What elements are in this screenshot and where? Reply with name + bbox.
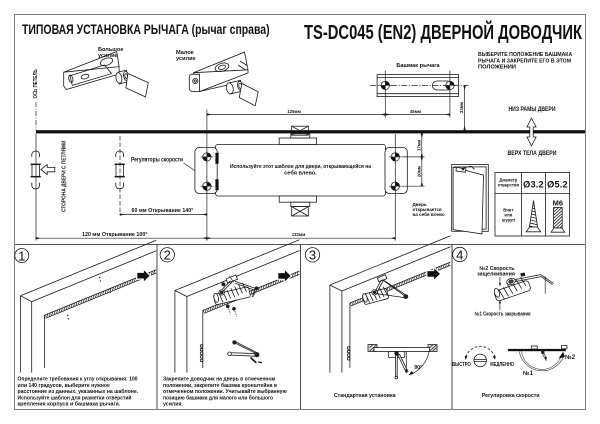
svg-text:№1 Скорость закрывания: №1 Скорость закрывания (475, 312, 531, 318)
svg-text:20мм: 20мм (416, 166, 421, 177)
svg-text:TS-DC045 (EN2) ДВЕРНОЙ ДОВОДЧИ: TS-DC045 (EN2) ДВЕРНОЙ ДОВОДЧИК (304, 20, 582, 44)
svg-text:усилие: усилие (98, 53, 118, 59)
svg-text:ВЕРХ ТЕЛА ДВЕРИ: ВЕРХ ТЕЛА ДВЕРИ (508, 151, 557, 157)
svg-text:отмеченном положении. Учитывай: отмеченном положении. Учитывайте выбранн… (163, 388, 287, 395)
svg-text:125мм: 125мм (287, 109, 301, 114)
svg-text:Стандартная установка: Стандартная установка (334, 393, 396, 399)
svg-text:ОСЬ ПЕТЕЛЬ: ОСЬ ПЕТЕЛЬ (33, 69, 39, 98)
svg-text:2: 2 (164, 248, 171, 263)
svg-text:60 мм Открывание 140°: 60 мм Открывание 140° (132, 208, 194, 214)
svg-text:шуруп: шуруп (502, 218, 516, 223)
svg-text:120 мм Открывание 100°: 120 мм Открывание 100° (82, 232, 148, 238)
svg-text:защелкивания: защелкивания (477, 272, 515, 278)
svg-text:СТОРОНА ДВЕРИ С ПЕТЛЯМИ: СТОРОНА ДВЕРИ С ПЕТЛЯМИ (62, 140, 68, 212)
svg-text:МЕДЛЕННО: МЕДЛЕННО (490, 362, 514, 368)
svg-text:Башмак рычага: Башмак рычага (396, 63, 440, 69)
svg-text:Ø5.2: Ø5.2 (547, 179, 568, 189)
svg-text:№2: №2 (565, 354, 576, 361)
svg-text:1: 1 (18, 248, 25, 263)
svg-text:НИЗ РАМЫ ДВЕРИ: НИЗ РАМЫ ДВЕРИ (509, 107, 556, 113)
svg-text:90°: 90° (414, 365, 422, 371)
svg-text:М6: М6 (553, 199, 563, 208)
svg-text:Закрепите доводчик на дверь в: Закрепите доводчик на дверь в отмеченном (163, 377, 275, 383)
svg-text:на себя влево: на себя влево (413, 211, 445, 217)
svg-text:отверстия: отверстия (498, 183, 520, 188)
svg-text:33мм: 33мм (459, 102, 464, 113)
svg-text:ВЫБЕРИТЕ ПОЛОЖЕНИЕ БАШМАКА: ВЫБЕРИТЕ ПОЛОЖЕНИЕ БАШМАКА (478, 52, 572, 58)
svg-text:или 140 градусов, выберите нуж: или 140 градусов, выберите нужное (18, 382, 110, 389)
svg-text:3: 3 (309, 248, 316, 263)
svg-text:Регуляторы скорости: Регуляторы скорости (131, 158, 183, 164)
svg-text:РЫЧАГА И ЗАКРЕПИТЕ ЕГО В ЭТОМ: РЫЧАГА И ЗАКРЕПИТЕ ЕГО В ЭТОМ (478, 58, 571, 64)
svg-text:Регулировка скорости: Регулировка скорости (482, 393, 540, 399)
svg-text:Ø3.2: Ø3.2 (523, 179, 544, 189)
svg-text:усилия.: усилия. (163, 402, 183, 408)
svg-text:крепления корпуса и башмака ры: крепления корпуса и башмака рычага. (18, 401, 121, 408)
svg-text:4: 4 (456, 247, 463, 262)
svg-text:17мм: 17мм (416, 140, 421, 151)
svg-text:ПОЛОЖЕНИИ: ПОЛОЖЕНИИ (478, 65, 516, 71)
svg-text:Определите требования к углу о: Определите требования к углу открывания:… (18, 376, 138, 383)
svg-text:БЫСТРО: БЫСТРО (452, 362, 471, 368)
svg-text:45мм: 45мм (410, 109, 421, 114)
svg-text:132мм: 132мм (292, 232, 306, 237)
svg-text:Используйте этот шаблон для дв: Используйте этот шаблон для двери, откры… (230, 163, 372, 170)
svg-text:себя влево.: себя влево. (284, 169, 317, 176)
svg-text:№1: №1 (523, 370, 534, 377)
svg-text:позицию башмака для малого или: позицию башмака для малого или большого (163, 394, 274, 401)
svg-text:ТИПОВАЯ УСТАНОВКА РЫЧАГА (рыча: ТИПОВАЯ УСТАНОВКА РЫЧАГА (рычаг справа) (22, 22, 270, 37)
svg-text:усилие: усилие (176, 56, 196, 62)
svg-text:Используйте шаблон для разметк: Используйте шаблон для разметки отверсти… (18, 394, 132, 401)
svg-text:положении, закрепите башмак кр: положении, закрепите башмак кронштейна в (163, 382, 278, 389)
svg-text:расстояние из данных, указанны: расстояние из данных, указанных на шабло… (18, 388, 139, 395)
